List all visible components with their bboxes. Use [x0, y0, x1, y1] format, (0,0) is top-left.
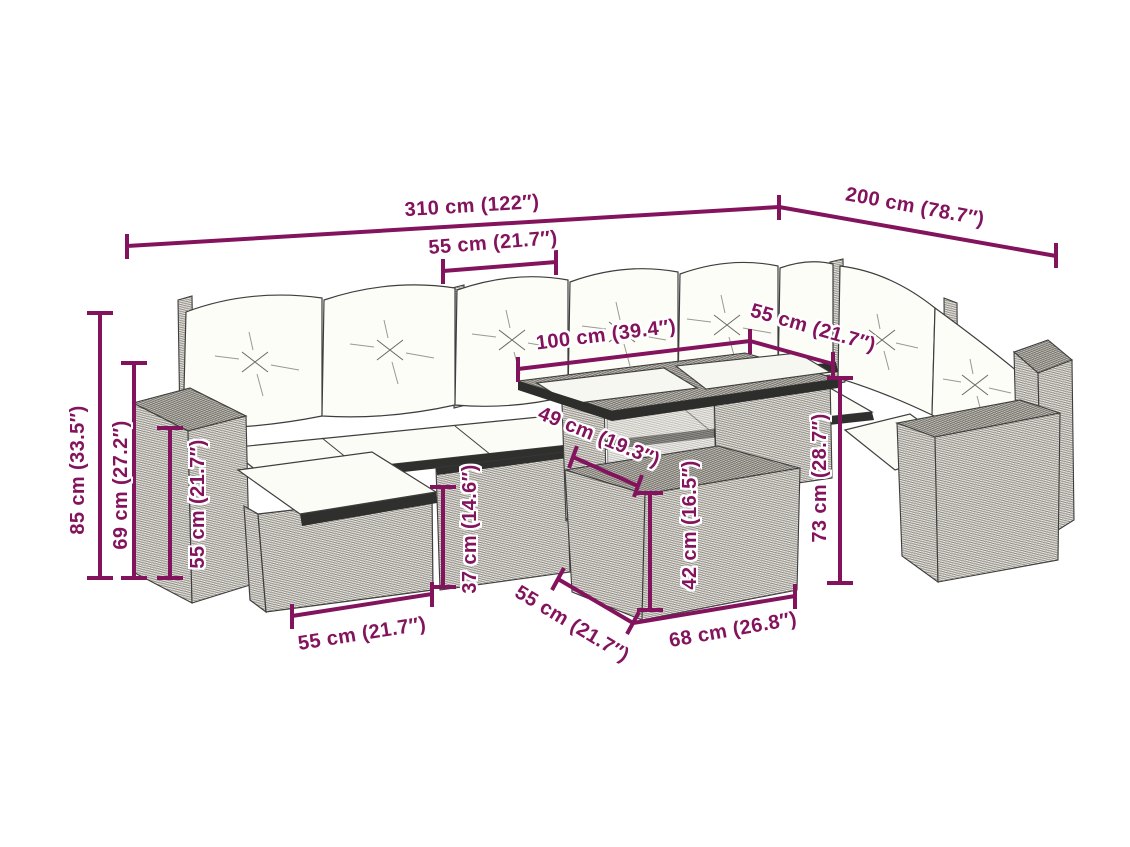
right-footstool	[897, 400, 1060, 582]
sofa-base	[436, 452, 570, 590]
dim-label-height-armrest: 55 cm (21.7″)	[188, 439, 208, 568]
dim-label-height-seat: 37 cm (14.6″)	[460, 464, 480, 593]
dim-label-height-total: 85 cm (33.5″)	[68, 405, 88, 534]
left-footstool	[238, 452, 437, 612]
dim-label-height-back: 69 cm (27.2″)	[111, 420, 131, 549]
dim-label-height-right: 73 cm (28.7″)	[810, 413, 830, 542]
product-dimension-diagram: 310 cm (122″) 200 cm (78.7″) 55 cm (21.7…	[0, 0, 1130, 847]
dim-label-height-table: 42 cm (16.5″)	[680, 460, 700, 589]
